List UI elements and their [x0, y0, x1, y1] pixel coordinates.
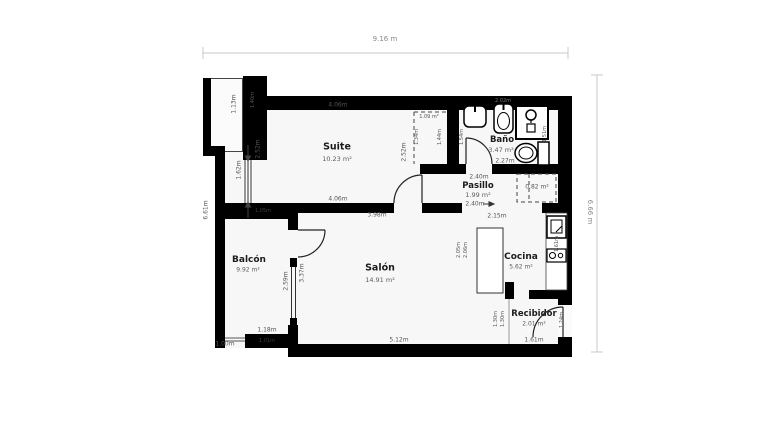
balcon-window [290, 258, 297, 327]
pasillo-area: 1.99 m² [465, 191, 490, 199]
cocina-name: Cocina [504, 252, 538, 262]
pasillo-dim-under: 2.15m [487, 213, 506, 220]
overall-width-label: 9.16 m [373, 35, 398, 43]
bano-dim-right: 1.51m [542, 126, 548, 142]
balcon-column-dim: 1.40m [250, 92, 256, 108]
recibidor-dim-left-b: 1.30m [500, 311, 506, 327]
balcon-wall-label-top: 1.05m [255, 208, 271, 214]
bano-name: Baño [490, 135, 514, 145]
balcon-notch-dim: 1.13m [231, 94, 238, 113]
cocina-island-dim-b: 2.06m [463, 242, 469, 258]
salon-name: Salón [365, 263, 395, 274]
cocina-island-dim-a: 2.05m [456, 242, 462, 258]
pasillo-arrow [483, 202, 494, 206]
bano-dim-bottom: 2.27m [495, 158, 514, 165]
balcon-dim-right: 2.59m [283, 271, 290, 290]
recibidor-dim-right: 1.24m [559, 312, 565, 328]
pasillo-closet-area: 0.82 m² [525, 184, 549, 191]
salon-dim-top: 3.98m [367, 212, 386, 219]
suite-closet-dim-b: 1.44m [437, 129, 443, 145]
balcon-dim-bottom-left: 1.00m [215, 341, 234, 348]
overall-height-label-right: 6.66 m [586, 200, 594, 225]
suite-closet-area: 1.09 m² [419, 114, 439, 120]
suite-window-dim: 1.62m [236, 160, 243, 179]
recibidor-area: 2.01 m² [522, 321, 546, 328]
recibidor-name: Recibidor [511, 309, 556, 319]
top-dimension-line [203, 47, 568, 59]
salon-dim-bottom: 5.12m [389, 337, 408, 344]
balcon-name: Balcón [232, 255, 266, 265]
salon-area: 14.91 m² [365, 276, 395, 284]
sink-icon [464, 102, 486, 127]
balcon-wall-label-bottom: 1.01m [259, 338, 275, 344]
suite-dim-left: 2.52m [255, 139, 262, 158]
balcon-dim-bottom: 1.18m [257, 327, 276, 334]
suite-area: 10.23 m² [322, 155, 352, 163]
balcon-area: 9.92 m² [236, 267, 260, 274]
overall-height-label-left: 6.61m [203, 200, 210, 219]
suite-name: Suite [323, 142, 351, 153]
floorplan: 9.16 m 6.66 m 6.61m Suite 10.23 m² 4.06m… [0, 0, 768, 432]
suite-window [245, 160, 251, 203]
suite-door [394, 175, 422, 203]
fridge-icon [547, 216, 566, 238]
salon-dim-left: 3.37m [299, 263, 306, 282]
bidet-icon [494, 104, 513, 133]
suite-dim-top: 4.06m [328, 102, 347, 109]
suite-dim-right: 2.52m [401, 142, 408, 161]
cocina-counter-dim: 1.61m [554, 236, 560, 252]
toilet-icon [515, 142, 549, 165]
suite-closet-dim-c: 1.54m [459, 129, 465, 145]
bano-area: 3.47 m² [488, 146, 513, 154]
balcon-door [298, 230, 325, 257]
pasillo-name: Pasillo [462, 181, 493, 191]
pasillo-dim-bottom: 2.40m [465, 201, 484, 208]
recibidor-dim-bottom: 1.61m [524, 337, 543, 344]
bano-fixture-dim: 2.02m [495, 98, 511, 104]
recibidor-dim-left-a: 1.30m [493, 311, 499, 327]
suite-dim-bottom: 4.06m [328, 196, 347, 203]
kitchen-island [477, 228, 503, 293]
suite-closet-dim-a: 1.34m [414, 129, 420, 145]
cocina-area: 5.62 m² [509, 264, 533, 271]
pasillo-dim-top: 2.40m [469, 174, 488, 181]
